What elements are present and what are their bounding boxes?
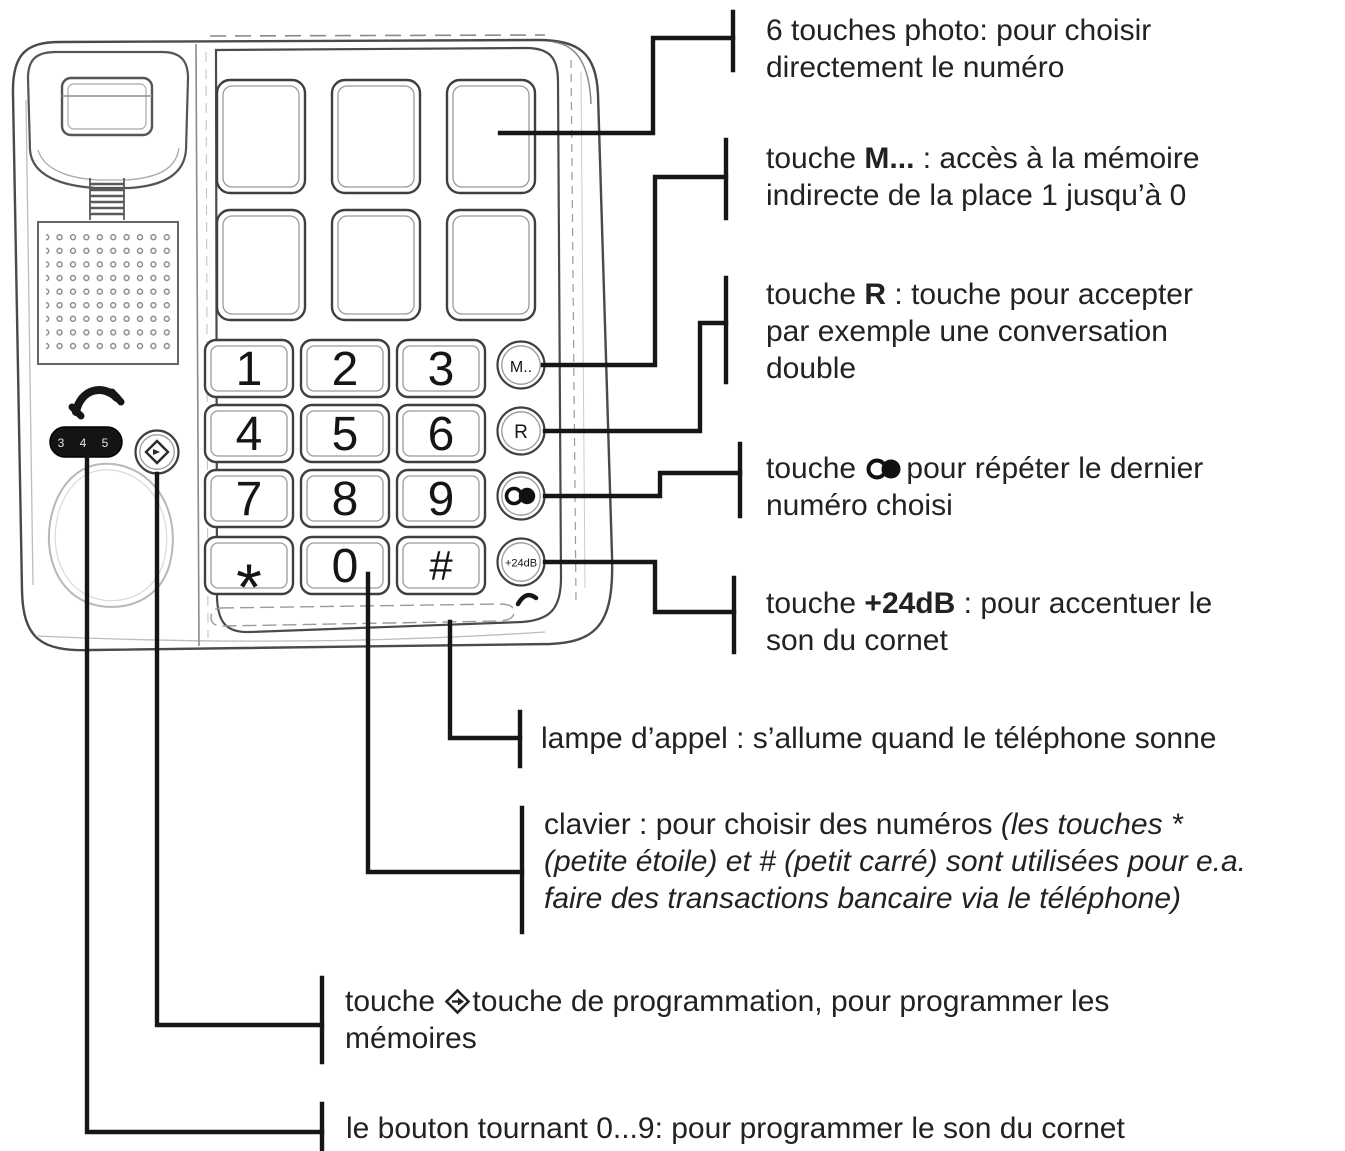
annotation-text: pour répéter le dernier: [906, 452, 1203, 485]
key-6: 6: [428, 408, 455, 461]
numeric-keypad: 1 2 3 4 5 6 7 8 9 * 0 #: [205, 340, 485, 624]
annotation-text: touche: [766, 452, 864, 485]
key-2: 2: [332, 343, 359, 396]
key-8: 8: [332, 473, 359, 526]
annotation-text: : touche pour accepter: [886, 278, 1193, 311]
key-name-bold: R: [864, 278, 886, 311]
memory-key-label: M..: [510, 359, 532, 376]
key-9: 9: [428, 473, 455, 526]
key-1: 1: [236, 343, 263, 396]
annotation-text: par exemple une conversation: [766, 313, 1193, 350]
key-5: 5: [332, 408, 359, 461]
key-4: 4: [236, 408, 263, 461]
key-star: *: [236, 550, 262, 624]
annotation-text: touche: [766, 142, 864, 175]
annotation-text: lampe d’appel : s’allume quand le téléph…: [541, 720, 1216, 757]
annotation-text: : accès à la mémoire: [914, 142, 1199, 175]
r-key-label: R: [514, 422, 528, 443]
annotation-lamp: lampe d’appel : s’allume quand le téléph…: [541, 720, 1216, 757]
annotation-r-key: touche R : touche pour accepter par exem…: [766, 276, 1193, 387]
key-name-bold: +24dB: [864, 587, 955, 620]
annotation-text: clavier : pour choisir des numéros: [544, 808, 1001, 841]
key-name-bold: M...: [864, 142, 914, 175]
annotation-text: indirecte de la place 1 jusqu’à 0: [766, 177, 1200, 214]
speaker-grille: [38, 222, 178, 364]
dial-numbers: 3 4 5: [58, 436, 115, 450]
key-7: 7: [236, 473, 263, 526]
annotation-text: touche: [766, 587, 864, 620]
annotation-text: 6 touches photo: pour choisir: [766, 12, 1151, 49]
annotation-text: double: [766, 350, 1193, 387]
annotation-photo-keys: 6 touches photo: pour choisir directemen…: [766, 12, 1151, 86]
annotation-text: touche: [766, 278, 864, 311]
annotation-text-italic: faire des transactions bancaire via le t…: [544, 880, 1246, 917]
annotation-text: numéro choisi: [766, 487, 1203, 524]
annotation-text-italic: (les touches *: [1001, 808, 1183, 841]
annotation-text-italic: (petite étoile) et # (petit carré) sont …: [544, 843, 1246, 880]
key-3: 3: [428, 343, 455, 396]
program-diamond-icon: [444, 988, 471, 1015]
annotation-memory-key: touche M... : accès à la mémoire indirec…: [766, 140, 1200, 214]
annotation-redial-key: touche pour répéter le dernier numéro ch…: [766, 450, 1203, 524]
annotation-amplify-key: touche +24dB : pour accentuer le son du …: [766, 585, 1212, 659]
key-hash: #: [429, 542, 453, 589]
key-0: 0: [332, 540, 359, 593]
redial-icon: [865, 455, 905, 482]
annotation-text: touche de programmation, pour programmer…: [472, 985, 1109, 1018]
annotation-keypad: clavier : pour choisir des numéros (les …: [544, 806, 1246, 917]
amplify-key-label: +24dB: [505, 558, 537, 570]
annotation-rotary-dial: le bouton tournant 0...9: pour programme…: [346, 1110, 1125, 1147]
annotation-text: touche: [345, 985, 443, 1018]
annotation-text: directement le numéro: [766, 49, 1151, 86]
rotary-volume-dial: 3 4 5: [50, 427, 122, 457]
annotation-text: mémoires: [345, 1020, 1109, 1057]
annotation-text: le bouton tournant 0...9: pour programme…: [346, 1110, 1125, 1147]
annotation-program-key: touche touche de programmation, pour pro…: [345, 983, 1109, 1057]
annotation-text: : pour accentuer le: [955, 587, 1212, 620]
diagram-canvas: 3 4 5: [0, 0, 1345, 1151]
annotation-text: son du cornet: [766, 622, 1212, 659]
